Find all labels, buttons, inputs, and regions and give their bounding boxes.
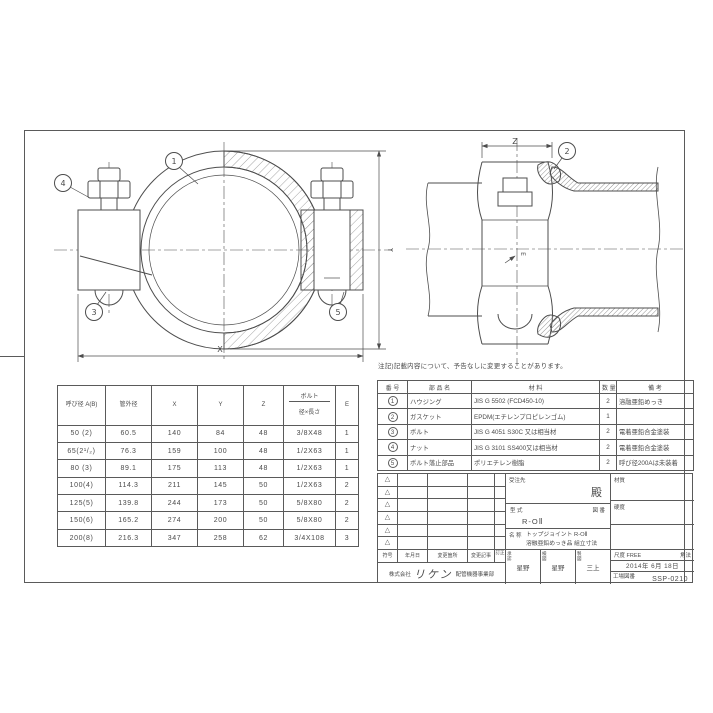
col-header-part-no: 番 号 <box>378 381 408 394</box>
blank-cell <box>611 525 694 550</box>
callout-gasket-number: 2 <box>564 147 569 156</box>
table-cell: 347 <box>152 529 198 546</box>
table-cell: 2 <box>600 394 617 409</box>
rev-cell <box>428 499 468 512</box>
table-cell: 1/2X63 <box>284 442 336 459</box>
model-cell: 型 式 図 番 R-OⅡ <box>506 504 611 529</box>
rev-cell <box>398 487 428 500</box>
product-name-line2: 溶融亜鉛めっき品 組立寸法 <box>526 540 597 549</box>
table-cell <box>617 409 694 424</box>
revision-triangle-icon: △ <box>385 539 390 546</box>
callout-bolt-number: 3 <box>91 308 96 317</box>
rev-cell <box>495 512 506 525</box>
table-cell: 48 <box>244 460 284 477</box>
table-cell: 211 <box>152 477 198 494</box>
table-row: 80 (3)89.1175113481/2X631 <box>58 460 359 477</box>
table-cell: 電着亜鉛合金塗装 <box>617 424 694 439</box>
rev-cell <box>398 474 428 487</box>
rev-cell <box>428 474 468 487</box>
coupling-side-profile <box>478 162 553 344</box>
table-cell: 呼び径200Aは未装着 <box>617 455 694 470</box>
rev-mark-cell: △ <box>378 499 398 512</box>
drawn-cell: 製図 三上 <box>576 550 611 584</box>
rev-mark-cell: △ <box>378 474 398 487</box>
callout-retainer-number: 5 <box>335 308 340 317</box>
dim-x-label: X <box>217 345 223 354</box>
parts-list-table: 番 号 部 品 名 材 料 数 量 備 考 1ハウジングJIS G 5502 (… <box>377 380 694 471</box>
checked-cell: 検図 星野 <box>541 550 576 584</box>
side-view-drawing: 2 Z E <box>402 136 690 370</box>
table-cell: 3/8X48 <box>284 425 336 442</box>
scale-text: 尺度 FREE <box>614 551 641 559</box>
table-cell: 139.8 <box>106 495 152 512</box>
rev-cell <box>495 525 506 538</box>
scale-value: FREE <box>627 553 642 559</box>
table-cell: 274 <box>152 512 198 529</box>
right-pipe-section <box>550 167 660 332</box>
product-name-cell: 名 称 トップジョイント R-OⅡ 溶融亜鉛めっき品 組立寸法 <box>506 529 611 550</box>
table-row: 65(2¹/₂)76.3159100481/2X631 <box>58 442 359 459</box>
company-row: 株式会社 リケン 配管機器事業部 <box>378 563 506 584</box>
revision-triangle-icon: △ <box>385 527 390 534</box>
drawn-label: 製図 <box>577 552 583 562</box>
rev-mark-cell: △ <box>378 525 398 538</box>
table-cell: 2 <box>378 409 408 424</box>
table-cell: 2 <box>336 495 359 512</box>
customer-honorific: 殿 <box>591 484 602 500</box>
table-cell: 65(2¹/₂) <box>58 442 106 459</box>
table-cell: 60.5 <box>106 425 152 442</box>
col-header-bolt-top: ボルト <box>289 394 330 403</box>
table-cell: 1 <box>336 425 359 442</box>
table-cell: 2 <box>600 424 617 439</box>
table-row: 150(6)165.2274200505/8X802 <box>58 512 359 529</box>
table-cell: ガスケット <box>408 409 472 424</box>
title-block: △ △ △ △ △ △ 符号 年月日 変更箇所 変更記事 訂正 株式会社 リケン… <box>377 473 693 583</box>
dimension-e <box>505 256 515 263</box>
scale-label: 尺度 <box>614 553 625 559</box>
rev-cell <box>468 512 495 525</box>
table-cell: 100 <box>198 442 244 459</box>
col-header-z: Z <box>244 386 284 426</box>
date-cell: 2014年 6月 18日 <box>611 561 694 572</box>
drawn-signature: 三上 <box>576 562 610 572</box>
dim-z-label: Z <box>512 137 518 146</box>
factory-drawing-no-value: SSP-0210 <box>652 576 688 583</box>
table-cell: 165.2 <box>106 512 152 529</box>
balloon-number: 5 <box>388 458 398 468</box>
balloon-number: 4 <box>388 442 398 452</box>
rev-cell <box>428 537 468 550</box>
col-header-bolt: ボルト 径×長さ <box>284 386 336 426</box>
table-row: 50 (2)60.514084483/8X481 <box>58 425 359 442</box>
rev-cell <box>428 525 468 538</box>
table-cell: 50 (2) <box>58 425 106 442</box>
rev-header-location: 変更箇所 <box>428 550 468 563</box>
table-cell: 62 <box>244 529 284 546</box>
table-cell: JIS G 3101 SS400又は相当材 <box>472 440 600 455</box>
table-cell: 3 <box>378 424 408 439</box>
rev-cell <box>495 474 506 487</box>
table-cell: 159 <box>152 442 198 459</box>
table-cell: 1 <box>336 460 359 477</box>
table-cell: 50 <box>244 477 284 494</box>
rev-cell <box>468 525 495 538</box>
table-cell: 89.1 <box>106 460 152 477</box>
col-header-remarks: 備 考 <box>617 381 694 394</box>
material-cell: 材質 <box>611 474 694 501</box>
rev-cell <box>428 487 468 500</box>
callout-housing-number: 1 <box>171 157 176 166</box>
company-logo-text: リケン <box>414 566 453 582</box>
balloon-number: 1 <box>388 396 398 406</box>
left-lug <box>78 210 140 290</box>
rev-header-date: 年月日 <box>398 550 428 563</box>
table-cell: ナット <box>408 440 472 455</box>
revision-header-row: 符号 年月日 変更箇所 変更記事 訂正 <box>378 550 506 563</box>
rev-cell <box>495 537 506 550</box>
table-cell: ハウジング <box>408 394 472 409</box>
col-header-y: Y <box>198 386 244 426</box>
table-cell: 2 <box>600 440 617 455</box>
table-cell: 113 <box>198 460 244 477</box>
table-cell: 電着亜鉛合金塗装 <box>617 440 694 455</box>
rev-cell <box>398 512 428 525</box>
revision-table: △ △ △ △ △ △ <box>378 474 506 550</box>
table-cell: 48 <box>244 442 284 459</box>
rev-header-description: 変更記事 <box>468 550 495 563</box>
company-division: 配管機器事業部 <box>456 570 495 578</box>
table-row: 200(8)216.3347258623/4X1083 <box>58 529 359 546</box>
col-header-e: E <box>336 386 359 426</box>
rev-cell <box>468 474 495 487</box>
table-cell: 100(4) <box>58 477 106 494</box>
parts-table-header-row: 番 号 部 品 名 材 料 数 量 備 考 <box>378 381 694 394</box>
table-row: 2ガスケットEPDM(エチレンプロピレンゴム)1 <box>378 409 694 424</box>
table-cell: 80 (3) <box>58 460 106 477</box>
table-cell: 114.3 <box>106 477 152 494</box>
table-row: 3ボルトJIS G 4051 S30C 又は相当材2電着亜鉛合金塗装 <box>378 424 694 439</box>
customer-label: 受注先 <box>509 476 526 484</box>
table-cell: 1 <box>336 442 359 459</box>
product-name-label: 名 称 <box>509 531 522 539</box>
table-cell: 3 <box>336 529 359 546</box>
drawing-note: 注記)記載内容について、予告なしに変更することがあります。 <box>378 360 567 370</box>
col-header-part-name: 部 品 名 <box>408 381 472 394</box>
table-cell: 173 <box>198 495 244 512</box>
checked-signature: 星野 <box>541 562 575 572</box>
col-header-material: 材 料 <box>472 381 600 394</box>
left-pipe <box>426 183 482 316</box>
rev-cell <box>468 487 495 500</box>
factory-drawing-no-cell: 工場図番 SSP-0210 <box>611 572 694 584</box>
factory-drawing-no-label: 工場図番 <box>613 572 635 580</box>
rev-cell <box>495 487 506 500</box>
table-cell: 4 <box>378 440 408 455</box>
rev-mark-cell: △ <box>378 537 398 550</box>
model-value: R-OⅡ <box>522 517 543 526</box>
table-cell: 200 <box>198 512 244 529</box>
approved-label: 承認 <box>507 552 513 562</box>
hardness-cell: 硬度 <box>611 501 694 525</box>
table-cell: JIS G 4051 S30C 又は相当材 <box>472 424 600 439</box>
col-header-nominal-size: 呼び径 A(B) <box>58 386 106 426</box>
table-cell: ボルト <box>408 424 472 439</box>
col-header-x: X <box>152 386 198 426</box>
rev-header-correction: 訂正 <box>495 550 506 563</box>
rev-cell <box>495 499 506 512</box>
frame-centering-mark <box>0 356 24 357</box>
callout-nut-number: 4 <box>60 179 65 188</box>
rev-cell <box>428 512 468 525</box>
dimension-table-header-row: 呼び径 A(B) 管外径 X Y Z ボルト 径×長さ E <box>58 386 359 426</box>
callout-housing <box>166 153 199 185</box>
gasket-section <box>538 162 561 338</box>
table-cell: 50 <box>244 495 284 512</box>
table-row: 100(4)114.3211145501/2X632 <box>58 477 359 494</box>
table-cell: 1/2X63 <box>284 460 336 477</box>
rev-cell <box>398 525 428 538</box>
table-cell: 5 <box>378 455 408 470</box>
table-cell: 2 <box>336 512 359 529</box>
rev-cell <box>468 499 495 512</box>
rev-cell <box>468 537 495 550</box>
table-row: 1ハウジングJIS G 5502 (FCD450-10)2溶融亜鉛めっき <box>378 394 694 409</box>
table-cell: 140 <box>152 425 198 442</box>
table-cell: 216.3 <box>106 529 152 546</box>
hardness-label: 硬度 <box>614 503 625 511</box>
dimension-table: 呼び径 A(B) 管外径 X Y Z ボルト 径×長さ E 50 (2)60.5… <box>57 385 359 547</box>
model-label: 型 式 <box>510 506 523 514</box>
table-cell: 84 <box>198 425 244 442</box>
table-cell: EPDM(エチレンプロピレンゴム) <box>472 409 600 424</box>
table-cell: ポリエチレン樹脂 <box>472 455 600 470</box>
company-prefix: 株式会社 <box>389 570 411 578</box>
rev-mark-cell: △ <box>378 512 398 525</box>
drawing-no-label: 図 番 <box>592 506 605 514</box>
table-cell: 48 <box>244 425 284 442</box>
engineering-drawing-page: 1 4 3 5 X Y <box>0 0 713 713</box>
table-cell: 溶融亜鉛めっき <box>617 394 694 409</box>
approved-signature: 星野 <box>506 562 540 572</box>
table-cell: 150(6) <box>58 512 106 529</box>
dim-e-label: E <box>519 252 526 256</box>
table-row: 125(5)139.8244173505/8X802 <box>58 495 359 512</box>
table-cell: 125(5) <box>58 495 106 512</box>
table-cell: ボルト落止部品 <box>408 455 472 470</box>
table-cell: 244 <box>152 495 198 512</box>
col-header-qty: 数 量 <box>600 381 617 394</box>
checked-label: 検図 <box>542 552 548 562</box>
rev-header-symbol: 符号 <box>378 550 398 563</box>
revision-triangle-icon: △ <box>385 489 390 496</box>
revision-triangle-icon: △ <box>385 476 390 483</box>
scale-cell: 尺度 FREE 角法 <box>611 550 694 561</box>
product-name-line1: トップジョイント R-OⅡ <box>526 531 597 540</box>
customer-cell: 受注先 殿 <box>506 474 611 504</box>
revision-triangle-icon: △ <box>385 501 390 508</box>
table-cell: 5/8X80 <box>284 512 336 529</box>
table-cell: 3/4X108 <box>284 529 336 546</box>
table-cell: 1 <box>378 394 408 409</box>
rev-mark-cell: △ <box>378 487 398 500</box>
rev-cell <box>398 537 428 550</box>
table-cell: 1/2X63 <box>284 477 336 494</box>
table-cell: 1 <box>600 409 617 424</box>
table-cell: 200(8) <box>58 529 106 546</box>
dim-y-label: Y <box>386 247 393 253</box>
table-cell: 145 <box>198 477 244 494</box>
rev-cell <box>398 499 428 512</box>
table-row: 4ナットJIS G 3101 SS400又は相当材2電着亜鉛合金塗装 <box>378 440 694 455</box>
table-cell: 258 <box>198 529 244 546</box>
table-row: 5ボルト落止部品ポリエチレン樹脂2呼び径200Aは未装着 <box>378 455 694 470</box>
table-cell: 50 <box>244 512 284 529</box>
projection-label: 角法 <box>680 551 691 559</box>
balloon-number: 2 <box>388 412 398 422</box>
balloon-number: 3 <box>388 427 398 437</box>
material-label: 材質 <box>614 476 625 484</box>
table-cell: 2 <box>600 455 617 470</box>
approved-cell: 承認 星野 <box>506 550 541 584</box>
table-cell: 175 <box>152 460 198 477</box>
table-cell: JIS G 5502 (FCD450-10) <box>472 394 600 409</box>
col-header-bolt-bottom: 径×長さ <box>284 410 335 418</box>
table-cell: 76.3 <box>106 442 152 459</box>
front-view-drawing: 1 4 3 5 X Y <box>48 138 393 378</box>
table-cell: 5/8X80 <box>284 495 336 512</box>
table-cell: 2 <box>336 477 359 494</box>
col-header-pipe-od: 管外径 <box>106 386 152 426</box>
revision-triangle-icon: △ <box>385 514 390 521</box>
